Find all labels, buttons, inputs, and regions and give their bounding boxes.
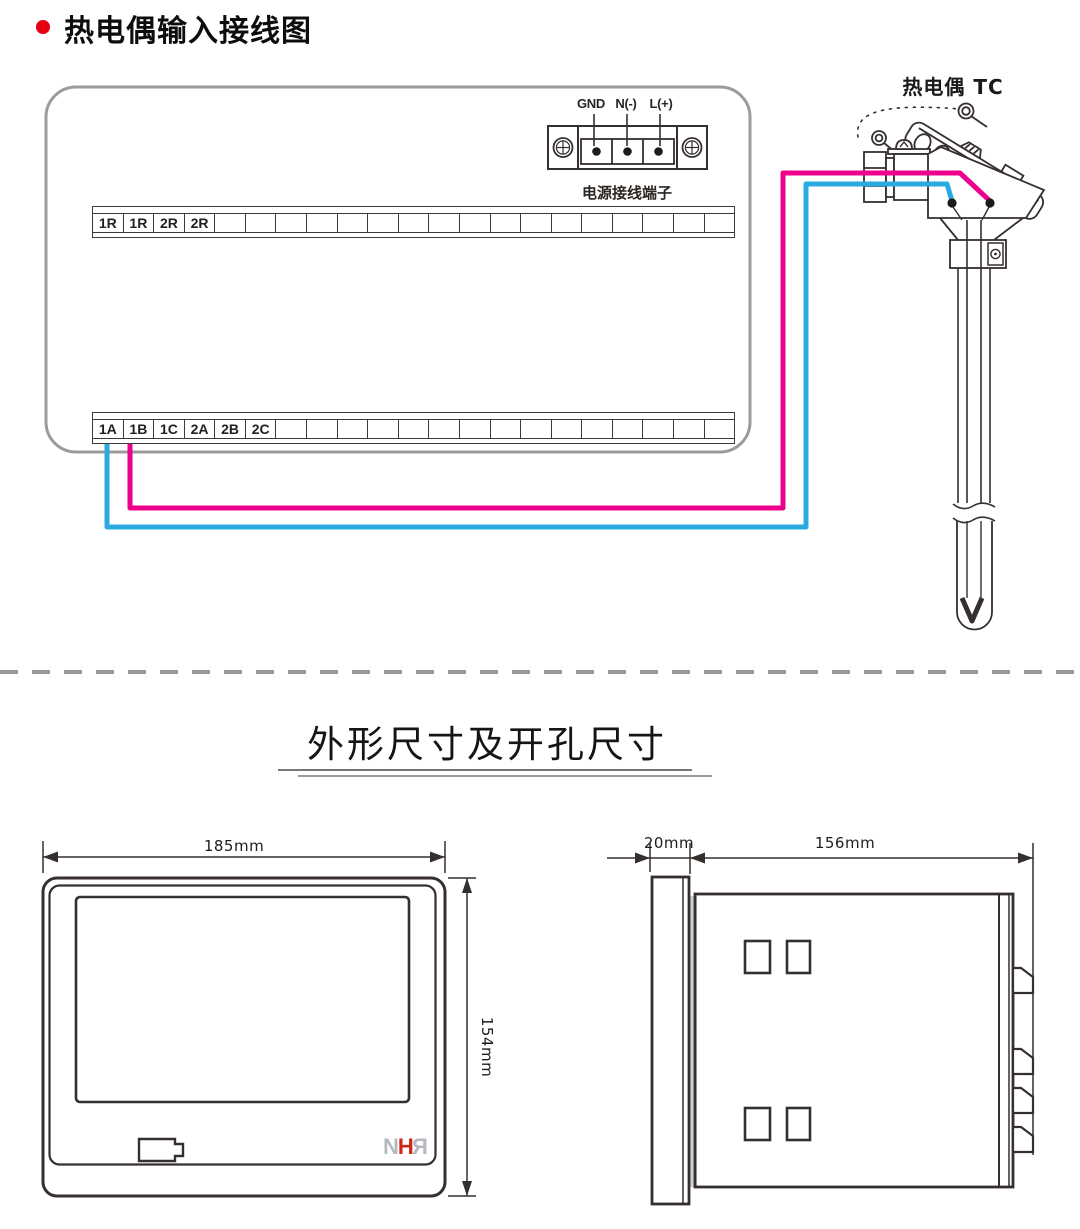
terminal-cell: 1A bbox=[93, 420, 124, 438]
collar bbox=[950, 240, 1006, 268]
line-art bbox=[0, 0, 1080, 1229]
terminal-cell: 2A bbox=[185, 420, 216, 438]
terminal-cell bbox=[643, 214, 674, 232]
terminal-cell: 1R bbox=[124, 214, 155, 232]
strip-rail bbox=[93, 438, 734, 443]
body bbox=[695, 894, 1013, 1187]
terminal-cell bbox=[399, 420, 430, 438]
title-underline bbox=[298, 775, 712, 777]
manual-page: 热电偶输入接线图 GND N(-) L(+) 电源接线端子 1R1R2R2R 1… bbox=[0, 0, 1080, 1229]
terminal-cell bbox=[491, 420, 522, 438]
screen bbox=[76, 897, 409, 1102]
vent-cutout bbox=[787, 1108, 810, 1140]
terminal-cell bbox=[276, 420, 307, 438]
mounting-clip bbox=[1013, 1088, 1033, 1113]
terminal-cell bbox=[674, 420, 705, 438]
vent-cutout bbox=[745, 1108, 770, 1140]
terminal-cell bbox=[307, 214, 338, 232]
strip-rail bbox=[93, 207, 734, 214]
strip-cells: 1R1R2R2R bbox=[93, 214, 734, 232]
terminal-cell bbox=[338, 420, 369, 438]
terminal-strip-bottom: 1A1B1C2A2B2C bbox=[92, 412, 735, 444]
terminal-cell bbox=[552, 420, 583, 438]
dim-height-front: 154mm bbox=[478, 1017, 496, 1077]
nhr-logo: NHR bbox=[383, 1134, 428, 1160]
terminal-cell bbox=[307, 420, 338, 438]
section-divider bbox=[0, 670, 1080, 674]
label-neutral: N(-) bbox=[615, 96, 636, 111]
usb-port-icon bbox=[139, 1139, 183, 1161]
terminal-cell: 1R bbox=[93, 214, 124, 232]
terminal-cell bbox=[613, 214, 644, 232]
terminal-cell bbox=[521, 214, 552, 232]
terminal-cell bbox=[399, 214, 430, 232]
terminal-cell bbox=[582, 420, 613, 438]
section-title: 外形尺寸及开孔尺寸 bbox=[307, 714, 667, 768]
power-terminal-caption: 电源接线端子 bbox=[582, 182, 672, 203]
logo-n: N bbox=[383, 1134, 398, 1159]
terminal-cell bbox=[368, 214, 399, 232]
strip-rail bbox=[93, 413, 734, 420]
terminal-cell bbox=[674, 214, 705, 232]
dim-bezel-depth: 20mm bbox=[644, 834, 694, 852]
terminal-cell bbox=[552, 214, 583, 232]
terminal-cell: 1C bbox=[154, 420, 185, 438]
terminal-cell bbox=[368, 420, 399, 438]
lid-screw-left-icon bbox=[872, 131, 894, 151]
power-terminal-block bbox=[548, 114, 707, 169]
terminal-cell bbox=[215, 214, 246, 232]
probe-tip bbox=[957, 521, 992, 630]
tc-terminal-dot-left bbox=[947, 198, 956, 207]
terminal-cell: 2B bbox=[215, 420, 246, 438]
thermocouple-label: 热电偶 TC bbox=[902, 71, 1003, 100]
terminal-cell bbox=[460, 214, 491, 232]
mounting-clip bbox=[1013, 968, 1033, 993]
logo-r: R bbox=[413, 1134, 428, 1160]
vent-cutout bbox=[787, 941, 810, 973]
side-view-drawing bbox=[607, 843, 1033, 1204]
screw-right-icon bbox=[683, 138, 702, 157]
terminal-strip-top: 1R1R2R2R bbox=[92, 206, 735, 238]
hex-fitting bbox=[864, 152, 894, 202]
terminal-cell bbox=[521, 420, 552, 438]
head-left-block bbox=[894, 154, 932, 200]
terminal-cell bbox=[429, 214, 460, 232]
terminal-cell bbox=[429, 420, 460, 438]
page-title: 热电偶输入接线图 bbox=[64, 6, 312, 50]
terminal-cell bbox=[643, 420, 674, 438]
terminal-cell: 1B bbox=[124, 420, 155, 438]
terminal-cell: 2R bbox=[154, 214, 185, 232]
terminal-cell bbox=[276, 214, 307, 232]
break-squiggle-bottom bbox=[953, 517, 995, 522]
tc-terminal-dot-right bbox=[985, 198, 994, 207]
vent-cutout bbox=[745, 941, 770, 973]
lid-screw-top-icon bbox=[959, 104, 988, 128]
bullet-icon bbox=[36, 20, 50, 34]
label-live: L(+) bbox=[650, 96, 673, 111]
strip-cells: 1A1B1C2A2B2C bbox=[93, 420, 734, 438]
label-gnd: GND bbox=[577, 96, 605, 111]
strip-rail bbox=[93, 232, 734, 237]
dim-body-depth: 156mm bbox=[815, 834, 875, 852]
terminal-cell bbox=[582, 214, 613, 232]
terminal-cell bbox=[705, 420, 735, 438]
terminal-cell bbox=[246, 214, 277, 232]
terminal-cell: 2R bbox=[185, 214, 216, 232]
terminal-cell bbox=[613, 420, 644, 438]
panel-outline bbox=[46, 87, 750, 452]
title-underline bbox=[278, 769, 692, 771]
terminal-cell bbox=[705, 214, 735, 232]
terminal-cell bbox=[460, 420, 491, 438]
junction-v-mark bbox=[962, 598, 982, 621]
dim-width-front: 185mm bbox=[204, 837, 264, 855]
mounting-clip bbox=[1013, 1049, 1033, 1074]
logo-h: H bbox=[398, 1134, 413, 1159]
screw-left-icon bbox=[554, 138, 573, 157]
terminal-cell: 2C bbox=[246, 420, 277, 438]
terminal-cell bbox=[491, 214, 522, 232]
terminal-cell bbox=[338, 214, 369, 232]
mounting-clip bbox=[1013, 1127, 1033, 1152]
